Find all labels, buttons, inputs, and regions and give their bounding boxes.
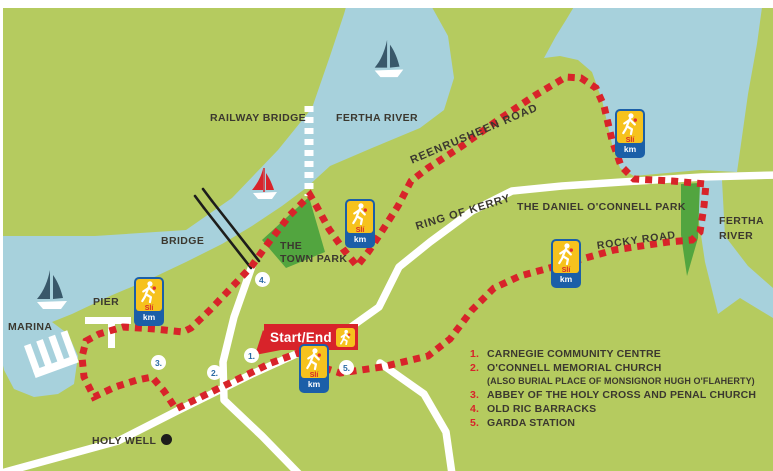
waypoint-1: 1. — [244, 348, 259, 363]
pier-structure — [85, 317, 131, 324]
sailboat-icon — [34, 268, 70, 317]
legend-item: 3. ABBEY OF THE HOLY CROSS AND PENAL CHU… — [470, 388, 756, 402]
label-fertha-line2: RIVER — [719, 230, 753, 242]
label-daniel-oconnell-park: THE DANIEL O'CONNELL PARK — [517, 201, 686, 213]
walking-figure-icon — [303, 347, 325, 370]
sli-marker-panel: Slí — [617, 111, 643, 143]
page-margin — [0, 0, 3, 471]
holy-well-dot-icon — [161, 434, 172, 445]
sli-km-marker: Slí km — [134, 277, 164, 326]
label-marina: MARINA — [8, 321, 52, 333]
legend-number: 3. — [470, 388, 487, 402]
legend-item: 2. O'CONNELL MEMORIAL CHURCH — [470, 361, 756, 375]
legend-number: 4. — [470, 402, 487, 416]
waypoint-2: 2. — [207, 365, 222, 380]
label-town-park-line1: THE — [280, 240, 302, 252]
km-word: km — [301, 380, 327, 389]
label-bridge: BRIDGE — [161, 235, 204, 247]
sli-km-marker: Slí km — [345, 199, 375, 248]
sli-word: Slí — [301, 372, 327, 379]
sli-km-marker: Slí km — [551, 239, 581, 288]
label-town-park-line2: TOWN PARK — [280, 253, 347, 265]
walking-figure-icon — [349, 202, 371, 225]
label-pier: PIER — [93, 296, 119, 308]
sli-word: Slí — [617, 137, 643, 144]
sli-logo — [336, 328, 355, 347]
legend-label: OLD RIC BARRACKS — [487, 402, 596, 416]
sli-marker-panel: Slí — [553, 241, 579, 273]
waypoint-3: 3. — [151, 355, 166, 370]
km-word: km — [347, 235, 373, 244]
legend-label: O'CONNELL MEMORIAL CHURCH — [487, 361, 662, 375]
sli-na-slainte-route-map: RAILWAY BRIDGE FERTHA RIVER REENRUSHEEN … — [0, 0, 773, 471]
legend-sublabel: (ALSO BURIAL PLACE OF MONSIGNOR HUGH O'F… — [487, 375, 756, 388]
sailboat-icon — [371, 38, 407, 85]
walking-figure-icon — [555, 242, 577, 265]
label-holy-well: HOLY WELL — [92, 434, 172, 447]
walking-figure-icon — [338, 329, 353, 345]
label-railway-bridge: RAILWAY BRIDGE — [210, 112, 306, 124]
km-word: km — [136, 313, 162, 322]
sli-marker-panel: Slí — [136, 279, 162, 311]
legend-number: 2. — [470, 361, 487, 375]
km-word: km — [617, 145, 643, 154]
page-margin — [0, 0, 773, 8]
legend-label: CARNEGIE COMMUNITY CENTRE — [487, 347, 661, 361]
legend-item: 1. CARNEGIE COMMUNITY CENTRE — [470, 347, 756, 361]
sli-km-marker: Slí km — [615, 109, 645, 158]
label-town-park: THE TOWN PARK — [280, 240, 347, 266]
legend: 1. CARNEGIE COMMUNITY CENTRE 2. O'CONNEL… — [470, 347, 756, 430]
sli-word: Slí — [553, 267, 579, 274]
label-fertha-river-right: FERTHA RIVER — [719, 214, 764, 244]
sailboat-red-icon — [249, 166, 281, 207]
start-end-label: Start/End — [270, 330, 332, 345]
legend-label: ABBEY OF THE HOLY CROSS AND PENAL CHURCH — [487, 388, 756, 402]
holy-well-text: HOLY WELL — [92, 435, 156, 447]
legend-item: 4. OLD RIC BARRACKS — [470, 402, 756, 416]
sli-word: Slí — [136, 305, 162, 312]
legend-number: 1. — [470, 347, 487, 361]
legend-item: 5. GARDA STATION — [470, 416, 756, 430]
sli-marker-panel: Slí — [347, 201, 373, 233]
sli-word: Slí — [347, 227, 373, 234]
waypoint-4: 4. — [255, 272, 270, 287]
walking-figure-icon — [138, 280, 160, 303]
walking-figure-icon — [619, 112, 641, 135]
sli-km-marker: Slí km — [299, 344, 329, 393]
label-fertha-line1: FERTHA — [719, 215, 764, 227]
waypoint-5: 5. — [339, 360, 354, 375]
sli-marker-panel: Slí — [301, 346, 327, 378]
legend-label: GARDA STATION — [487, 416, 575, 430]
label-fertha-river-top: FERTHA RIVER — [336, 112, 418, 124]
legend-number: 5. — [470, 416, 487, 430]
km-word: km — [553, 275, 579, 284]
